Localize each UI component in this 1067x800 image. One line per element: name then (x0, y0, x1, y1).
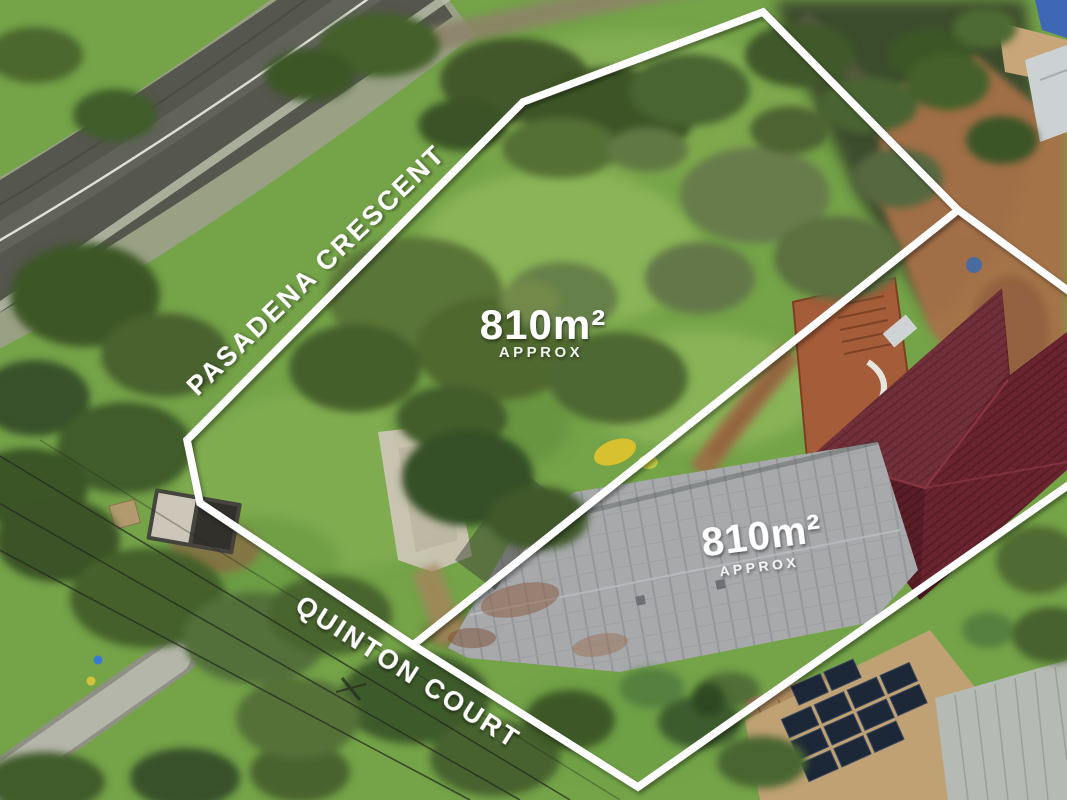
aerial-photo-canvas: 810m² APPROX 810m² APPROX PASADENA CRESC… (0, 0, 1067, 800)
lot1-area-value: 810m² (480, 301, 606, 348)
blue-item (966, 257, 982, 273)
lot1-area-approx: APPROX (499, 344, 583, 361)
aerial-photo: 810m² APPROX 810m² APPROX PASADENA CRESC… (0, 0, 1067, 800)
